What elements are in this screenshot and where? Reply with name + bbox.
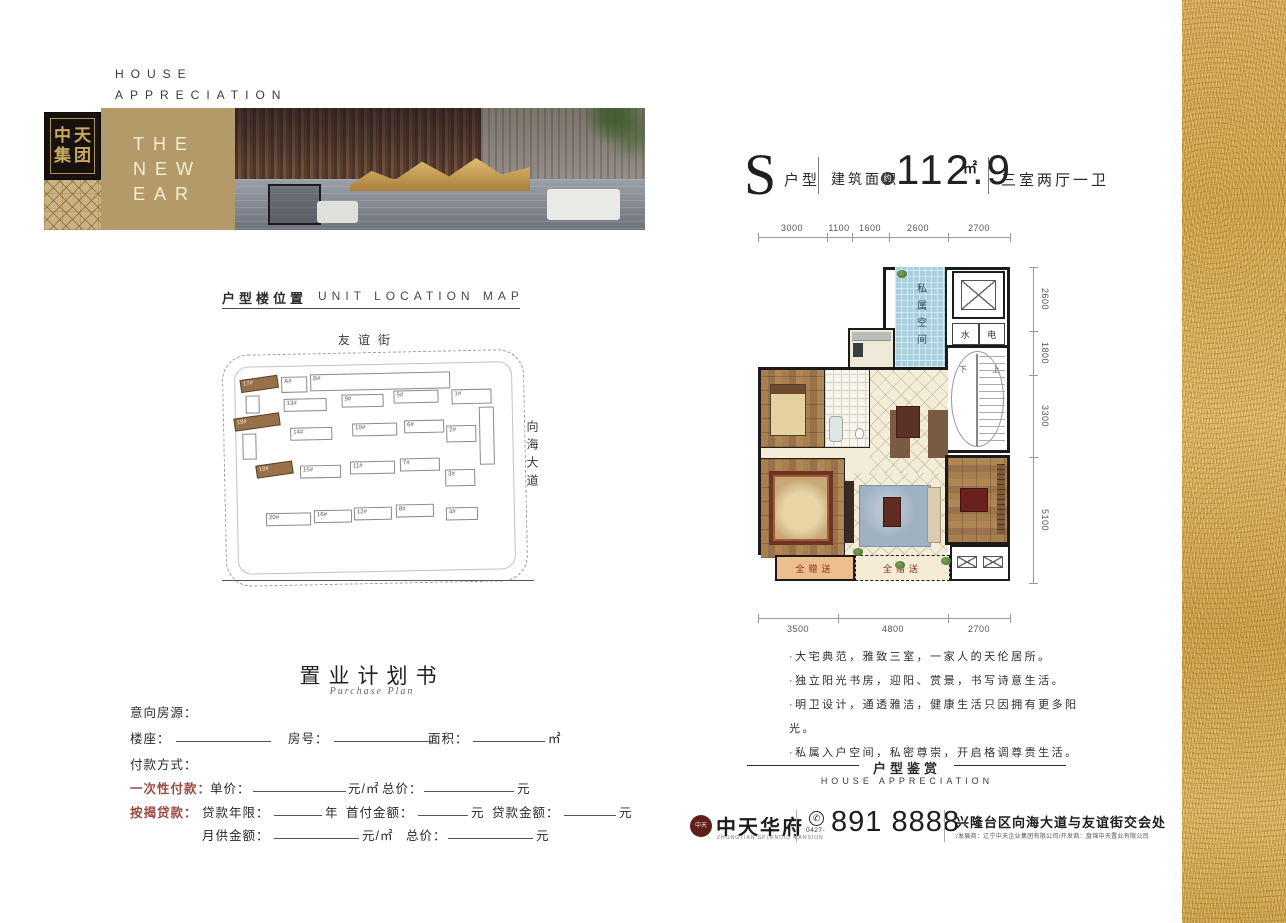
building: 1# bbox=[451, 389, 491, 405]
payment-label: 付款方式： bbox=[130, 754, 198, 773]
title-divider-1 bbox=[818, 157, 819, 194]
dim-right-1: 2600 bbox=[1040, 288, 1050, 310]
study bbox=[945, 455, 1010, 545]
kitchen bbox=[848, 328, 895, 370]
tick bbox=[1010, 614, 1011, 623]
building-label: 2# bbox=[449, 427, 456, 433]
footer-divider-1 bbox=[796, 810, 797, 842]
total-label: 总价： bbox=[382, 778, 423, 797]
water-meter-label: 水 bbox=[952, 323, 979, 345]
electric-meter-label: 电 bbox=[979, 323, 1006, 345]
dim-top-2: 1100 bbox=[828, 223, 849, 233]
building-label: B# bbox=[313, 376, 320, 382]
building-blank bbox=[176, 728, 271, 742]
group-logo-text: 中天 集团 bbox=[50, 118, 95, 174]
total2-blank bbox=[448, 825, 533, 839]
street-top-label: 友谊街 bbox=[338, 331, 398, 348]
plant bbox=[897, 270, 907, 278]
loan-years-blank bbox=[274, 802, 322, 816]
ac-unit-2 bbox=[983, 556, 1003, 568]
area-blank bbox=[473, 728, 545, 742]
dim-top-4: 2600 bbox=[907, 223, 929, 233]
gold-art-strip bbox=[1182, 0, 1286, 923]
tagline-line1: HOUSE bbox=[115, 64, 287, 85]
dim-bottom-1: 3500 bbox=[787, 624, 809, 634]
phone-icon: ✆ bbox=[809, 811, 824, 826]
feature-item: ·大宅典范，雅致三室，一家人的天伦居所。 bbox=[789, 645, 1079, 669]
address: 兴隆台区向海大道与友谊街交会处 bbox=[956, 812, 1166, 831]
site-map: 17# A# B# 1# 13# 9# 5# 18# 14# 10# 6# 2#… bbox=[222, 349, 529, 587]
tick bbox=[758, 233, 759, 242]
phone-area-code: 0427- bbox=[806, 827, 825, 834]
building: 11# bbox=[350, 461, 395, 475]
title-divider-2 bbox=[988, 157, 989, 194]
dim-right-4: 5100 bbox=[1040, 509, 1050, 531]
building-label: 14# bbox=[293, 429, 303, 435]
building-label: 6# bbox=[407, 422, 414, 428]
brochure-page: HOUSE APPRECIATION THE NEW EAR 中天 集团 S 户… bbox=[0, 0, 1286, 923]
building: 9# bbox=[341, 394, 383, 408]
years-unit: 年 bbox=[325, 802, 339, 821]
map-title-en: UNIT LOCATION MAP bbox=[318, 289, 524, 303]
living-room bbox=[845, 473, 948, 558]
tick bbox=[889, 233, 890, 242]
bedroom-north bbox=[761, 370, 825, 448]
building-label: A# bbox=[284, 379, 291, 385]
tick bbox=[1029, 583, 1038, 584]
mortgage-label: 按揭贷款： bbox=[130, 802, 198, 821]
unit-type-label: 户型 bbox=[784, 169, 820, 190]
tick bbox=[758, 614, 759, 623]
approx-badge: 约 bbox=[881, 172, 894, 185]
gift-balcony-left: 全赠送 bbox=[775, 555, 855, 581]
building-label: 8# bbox=[399, 506, 406, 512]
stair-down-label: 下 bbox=[959, 364, 967, 375]
area-unit-label: ㎡ bbox=[548, 728, 562, 747]
logo-line2: 集团 bbox=[54, 146, 94, 166]
loan-label: 贷款金额： bbox=[492, 802, 560, 821]
bookshelf bbox=[997, 464, 1005, 534]
utility-meters: 水 电 bbox=[952, 323, 1005, 345]
dim-top-5: 2700 bbox=[968, 223, 990, 233]
tick bbox=[1029, 457, 1038, 458]
bathtub bbox=[829, 416, 843, 442]
unit-price-label: 单价： bbox=[210, 778, 251, 797]
building: 4# bbox=[446, 507, 478, 521]
group-logo: 中天 集团 bbox=[44, 112, 101, 180]
tick bbox=[852, 233, 853, 242]
building-label: 10# bbox=[355, 425, 365, 431]
appreciation-en: HOUSE APPRECIATION bbox=[812, 776, 1002, 786]
building-label: 20# bbox=[269, 515, 279, 521]
building: 12# bbox=[354, 507, 392, 521]
intent-label: 意向房源： bbox=[130, 702, 198, 721]
phone-number: 891 8888 bbox=[831, 806, 960, 839]
stairwell: 下 上 bbox=[945, 345, 1010, 453]
dim-bottom-2: 4800 bbox=[882, 624, 904, 634]
gift-left-label: 全赠送 bbox=[795, 562, 834, 575]
brand-name-en: ZHONGTIAN SPLENDID MANSION bbox=[717, 835, 824, 841]
photo-chair-frame bbox=[268, 184, 321, 225]
building-label: 18# bbox=[237, 419, 248, 426]
building-label: 11# bbox=[353, 463, 363, 469]
building: 3# bbox=[445, 469, 475, 487]
dim-right-2: 1800 bbox=[1040, 342, 1050, 364]
photo-sofa-2 bbox=[317, 201, 358, 223]
building-label: 3# bbox=[448, 471, 455, 477]
master-bed bbox=[769, 471, 833, 545]
total-blank bbox=[424, 778, 514, 792]
area-value: 112.9 bbox=[896, 146, 1013, 194]
private-entry-space: 私属空间 bbox=[895, 267, 947, 367]
building: A# bbox=[281, 376, 307, 393]
building: 15# bbox=[300, 465, 341, 479]
tick bbox=[948, 233, 949, 242]
photo-sofa bbox=[547, 189, 621, 221]
kitchen-stove bbox=[853, 343, 863, 357]
building-label: 19# bbox=[259, 466, 270, 473]
private-space-label: 私属空间 bbox=[913, 283, 928, 351]
building: 8# bbox=[396, 504, 434, 518]
area-unit: ㎡ bbox=[963, 158, 977, 178]
plant bbox=[895, 561, 905, 569]
banner-the-new-ear: THE NEW EAR bbox=[101, 108, 235, 230]
building-label: 4# bbox=[449, 509, 456, 515]
monthly-label: 月供金额： bbox=[202, 825, 270, 844]
building-label: 12# bbox=[357, 509, 367, 515]
header-tagline: HOUSE APPRECIATION bbox=[115, 64, 287, 106]
down-label: 首付金额： bbox=[346, 802, 414, 821]
tick bbox=[1029, 267, 1038, 268]
building: 5# bbox=[393, 390, 438, 404]
dim-top-1: 3000 bbox=[781, 223, 803, 233]
total-unit: 元 bbox=[517, 778, 531, 797]
logo-line1: 中天 bbox=[54, 126, 94, 146]
dining-room bbox=[870, 370, 948, 473]
unit-price-blank bbox=[253, 778, 346, 792]
appreciation-rule-right bbox=[954, 765, 1066, 766]
building-unlabeled bbox=[245, 395, 259, 413]
map-title-cn: 户型楼位置 bbox=[222, 288, 307, 307]
plant bbox=[853, 548, 863, 556]
balcony-right bbox=[950, 545, 1010, 581]
plant bbox=[941, 557, 951, 565]
feature-list: ·大宅典范，雅致三室，一家人的天伦居所。 ·独立阳光书房，迎阳、赏景，书写诗意生… bbox=[789, 645, 1079, 765]
floor-plan: 3000 1100 1600 2600 2700 2600 1800 3300 … bbox=[745, 215, 1075, 645]
building: 13# bbox=[284, 398, 327, 412]
building: 7# bbox=[400, 458, 440, 472]
tick bbox=[838, 614, 839, 623]
tv-cabinet bbox=[845, 481, 854, 543]
room-blank bbox=[334, 728, 432, 742]
dim-bottom-3: 2700 bbox=[968, 624, 990, 634]
dim-top-3: 1600 bbox=[859, 223, 881, 233]
sofa bbox=[927, 487, 941, 543]
building: 16# bbox=[314, 509, 352, 523]
down-blank bbox=[418, 802, 468, 816]
stair-up-label: 上 bbox=[992, 364, 1000, 375]
feature-item: ·独立阳光书房，迎阳、赏景，书写诗意生活。 bbox=[789, 669, 1079, 693]
tick bbox=[948, 614, 949, 623]
down-unit: 元 bbox=[471, 802, 485, 821]
tick bbox=[827, 233, 828, 242]
total2-unit: 元 bbox=[536, 825, 550, 844]
banner-line1: THE bbox=[133, 132, 235, 157]
banner-line3: EAR bbox=[133, 182, 235, 207]
building-label: 9# bbox=[344, 396, 351, 402]
developer-companies: /发展商：辽宁中天企业集团有限公司/开发商：盘锦中天置业有限公司 bbox=[956, 831, 1149, 840]
banner-line2: NEW bbox=[133, 157, 235, 182]
monthly-blank bbox=[274, 825, 359, 839]
total2-label: 总价： bbox=[406, 825, 447, 844]
building-label: 5# bbox=[396, 392, 403, 398]
building-label: 7# bbox=[403, 460, 410, 466]
building: 14# bbox=[290, 427, 332, 441]
coffee-table bbox=[883, 497, 901, 527]
feature-item: ·明卫设计，通透雅洁，健康生活只因拥有更多阳光。 bbox=[789, 693, 1079, 741]
rooms-label: 三室两厅一卫 bbox=[1001, 169, 1109, 190]
street-right-label: 向海大道 bbox=[524, 420, 541, 492]
building: 20# bbox=[266, 512, 311, 526]
appreciation-rule-left bbox=[747, 765, 859, 766]
tick bbox=[1029, 331, 1038, 332]
building-label: 15# bbox=[303, 467, 313, 473]
brand-seal-icon: 中天 bbox=[690, 815, 712, 837]
building-label: 13# bbox=[287, 401, 297, 407]
dim-right-3: 3300 bbox=[1040, 405, 1050, 427]
bed-north bbox=[770, 384, 806, 436]
building-label: 16# bbox=[317, 512, 327, 518]
building-unlabeled bbox=[479, 406, 495, 464]
building-label: 17# bbox=[243, 380, 254, 387]
building: 10# bbox=[352, 423, 397, 437]
toilet bbox=[855, 428, 864, 439]
bathroom bbox=[825, 370, 870, 448]
elevator-shaft bbox=[952, 271, 1005, 319]
appreciation-cn: 户型鉴赏 bbox=[862, 758, 952, 777]
hero-photo bbox=[235, 108, 645, 230]
unit-price-unit: 元/㎡ bbox=[348, 778, 379, 797]
map-bottom-rule bbox=[222, 580, 534, 581]
logo-lattice-pattern bbox=[44, 180, 101, 230]
building: B# bbox=[310, 371, 450, 391]
monthly-unit: 元/㎡ bbox=[362, 825, 393, 844]
map-title-underline bbox=[222, 308, 520, 309]
tick bbox=[1029, 375, 1038, 376]
unit-letter: S bbox=[744, 146, 776, 204]
area-label: 面积： bbox=[428, 728, 469, 747]
building-label: 1# bbox=[454, 391, 461, 397]
ac-unit-1 bbox=[957, 556, 977, 568]
plan-main-body bbox=[758, 367, 945, 555]
building: 2# bbox=[446, 425, 476, 443]
purchase-plan-form: 意向房源： 楼座： 房号： 面积： ㎡ 付款方式： 一次性付款： 单价： 元/㎡… bbox=[128, 695, 658, 845]
stair-rail bbox=[976, 354, 978, 446]
building-label: 楼座： bbox=[130, 728, 171, 747]
dim-line-bottom bbox=[758, 618, 1010, 619]
dining-table bbox=[896, 406, 920, 438]
master-bedroom bbox=[761, 458, 845, 558]
tagline-line2: APPRECIATION bbox=[115, 85, 287, 106]
loan-blank bbox=[564, 802, 616, 816]
building: 6# bbox=[404, 420, 444, 434]
kitchen-counter bbox=[852, 332, 891, 341]
tick bbox=[1010, 233, 1011, 242]
dim-line-right bbox=[1033, 267, 1034, 583]
loan-years-label: 贷款年限： bbox=[202, 802, 270, 821]
building-unlabeled bbox=[242, 433, 257, 459]
footer-divider-2 bbox=[944, 810, 945, 842]
room-label: 房号： bbox=[288, 728, 329, 747]
loan-unit: 元 bbox=[619, 802, 633, 821]
dim-line-top bbox=[758, 237, 1010, 238]
elevator-car bbox=[961, 280, 996, 310]
study-desk bbox=[960, 488, 988, 512]
onetime-label: 一次性付款： bbox=[130, 778, 211, 797]
